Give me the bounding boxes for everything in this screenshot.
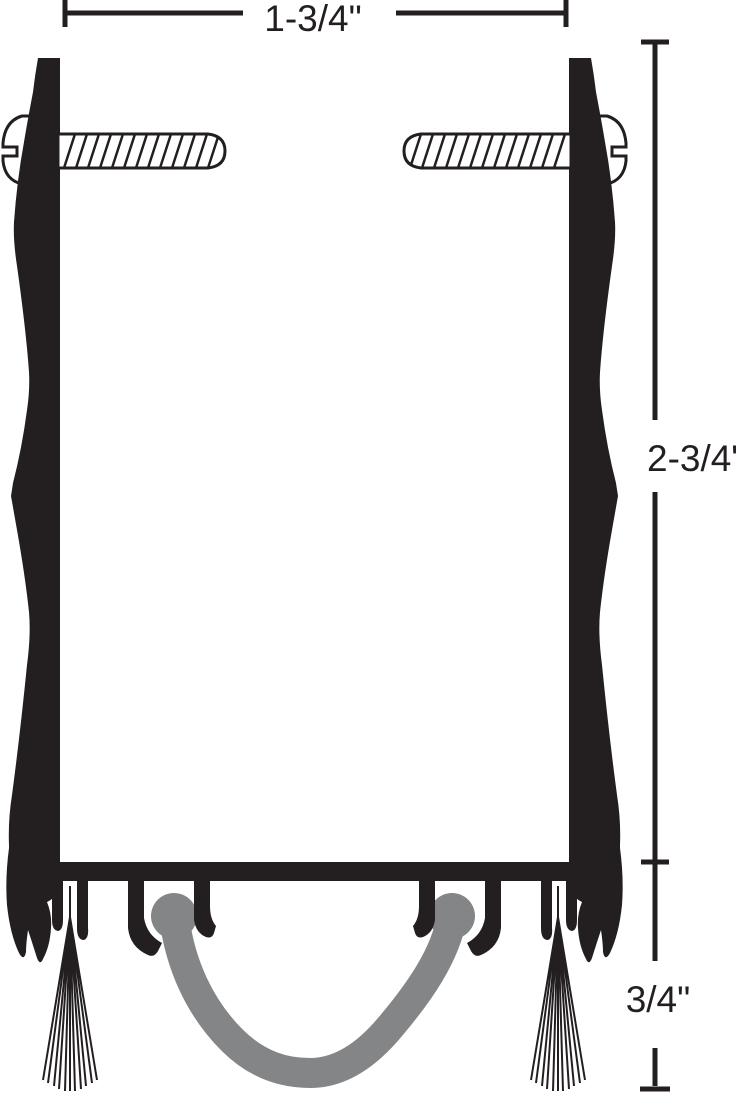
door-sweep-diagram: 1-3/4" 2-3/4" 3/4" [0,0,736,1096]
width-label: 1-3/4" [264,0,361,39]
brush-fibers [531,917,585,1091]
drop-dimension: 3/4" [626,862,691,1089]
width-dimension: 1-3/4" [65,0,566,39]
screw-right-icon [404,134,571,168]
screw-left-icon [58,134,225,168]
brush-seal-left [43,881,97,1091]
brush-jaw [52,881,63,931]
cross-section-drawing: 1-3/4" 2-3/4" 3/4" [0,0,736,1096]
loop-retainer-left-inner [194,881,216,938]
loop-retainer-right-inner [413,881,435,938]
drop-label: 3/4" [626,979,691,1020]
retainer-bar [40,862,590,881]
brush-jaw [541,881,552,940]
housing-foot-left [6,826,58,962]
height-label: 2-3/4" [647,438,736,479]
brush-seal-right [531,881,585,1091]
height-dimension: 2-3/4" [641,42,736,862]
housing-extrusion [6,58,622,962]
loop-tube [174,916,452,1073]
brush-jaw [77,881,88,940]
brush-fibers [43,917,97,1091]
housing-foot-right [571,826,623,962]
loop-seal [128,881,501,1073]
brush-jaw [566,881,577,931]
